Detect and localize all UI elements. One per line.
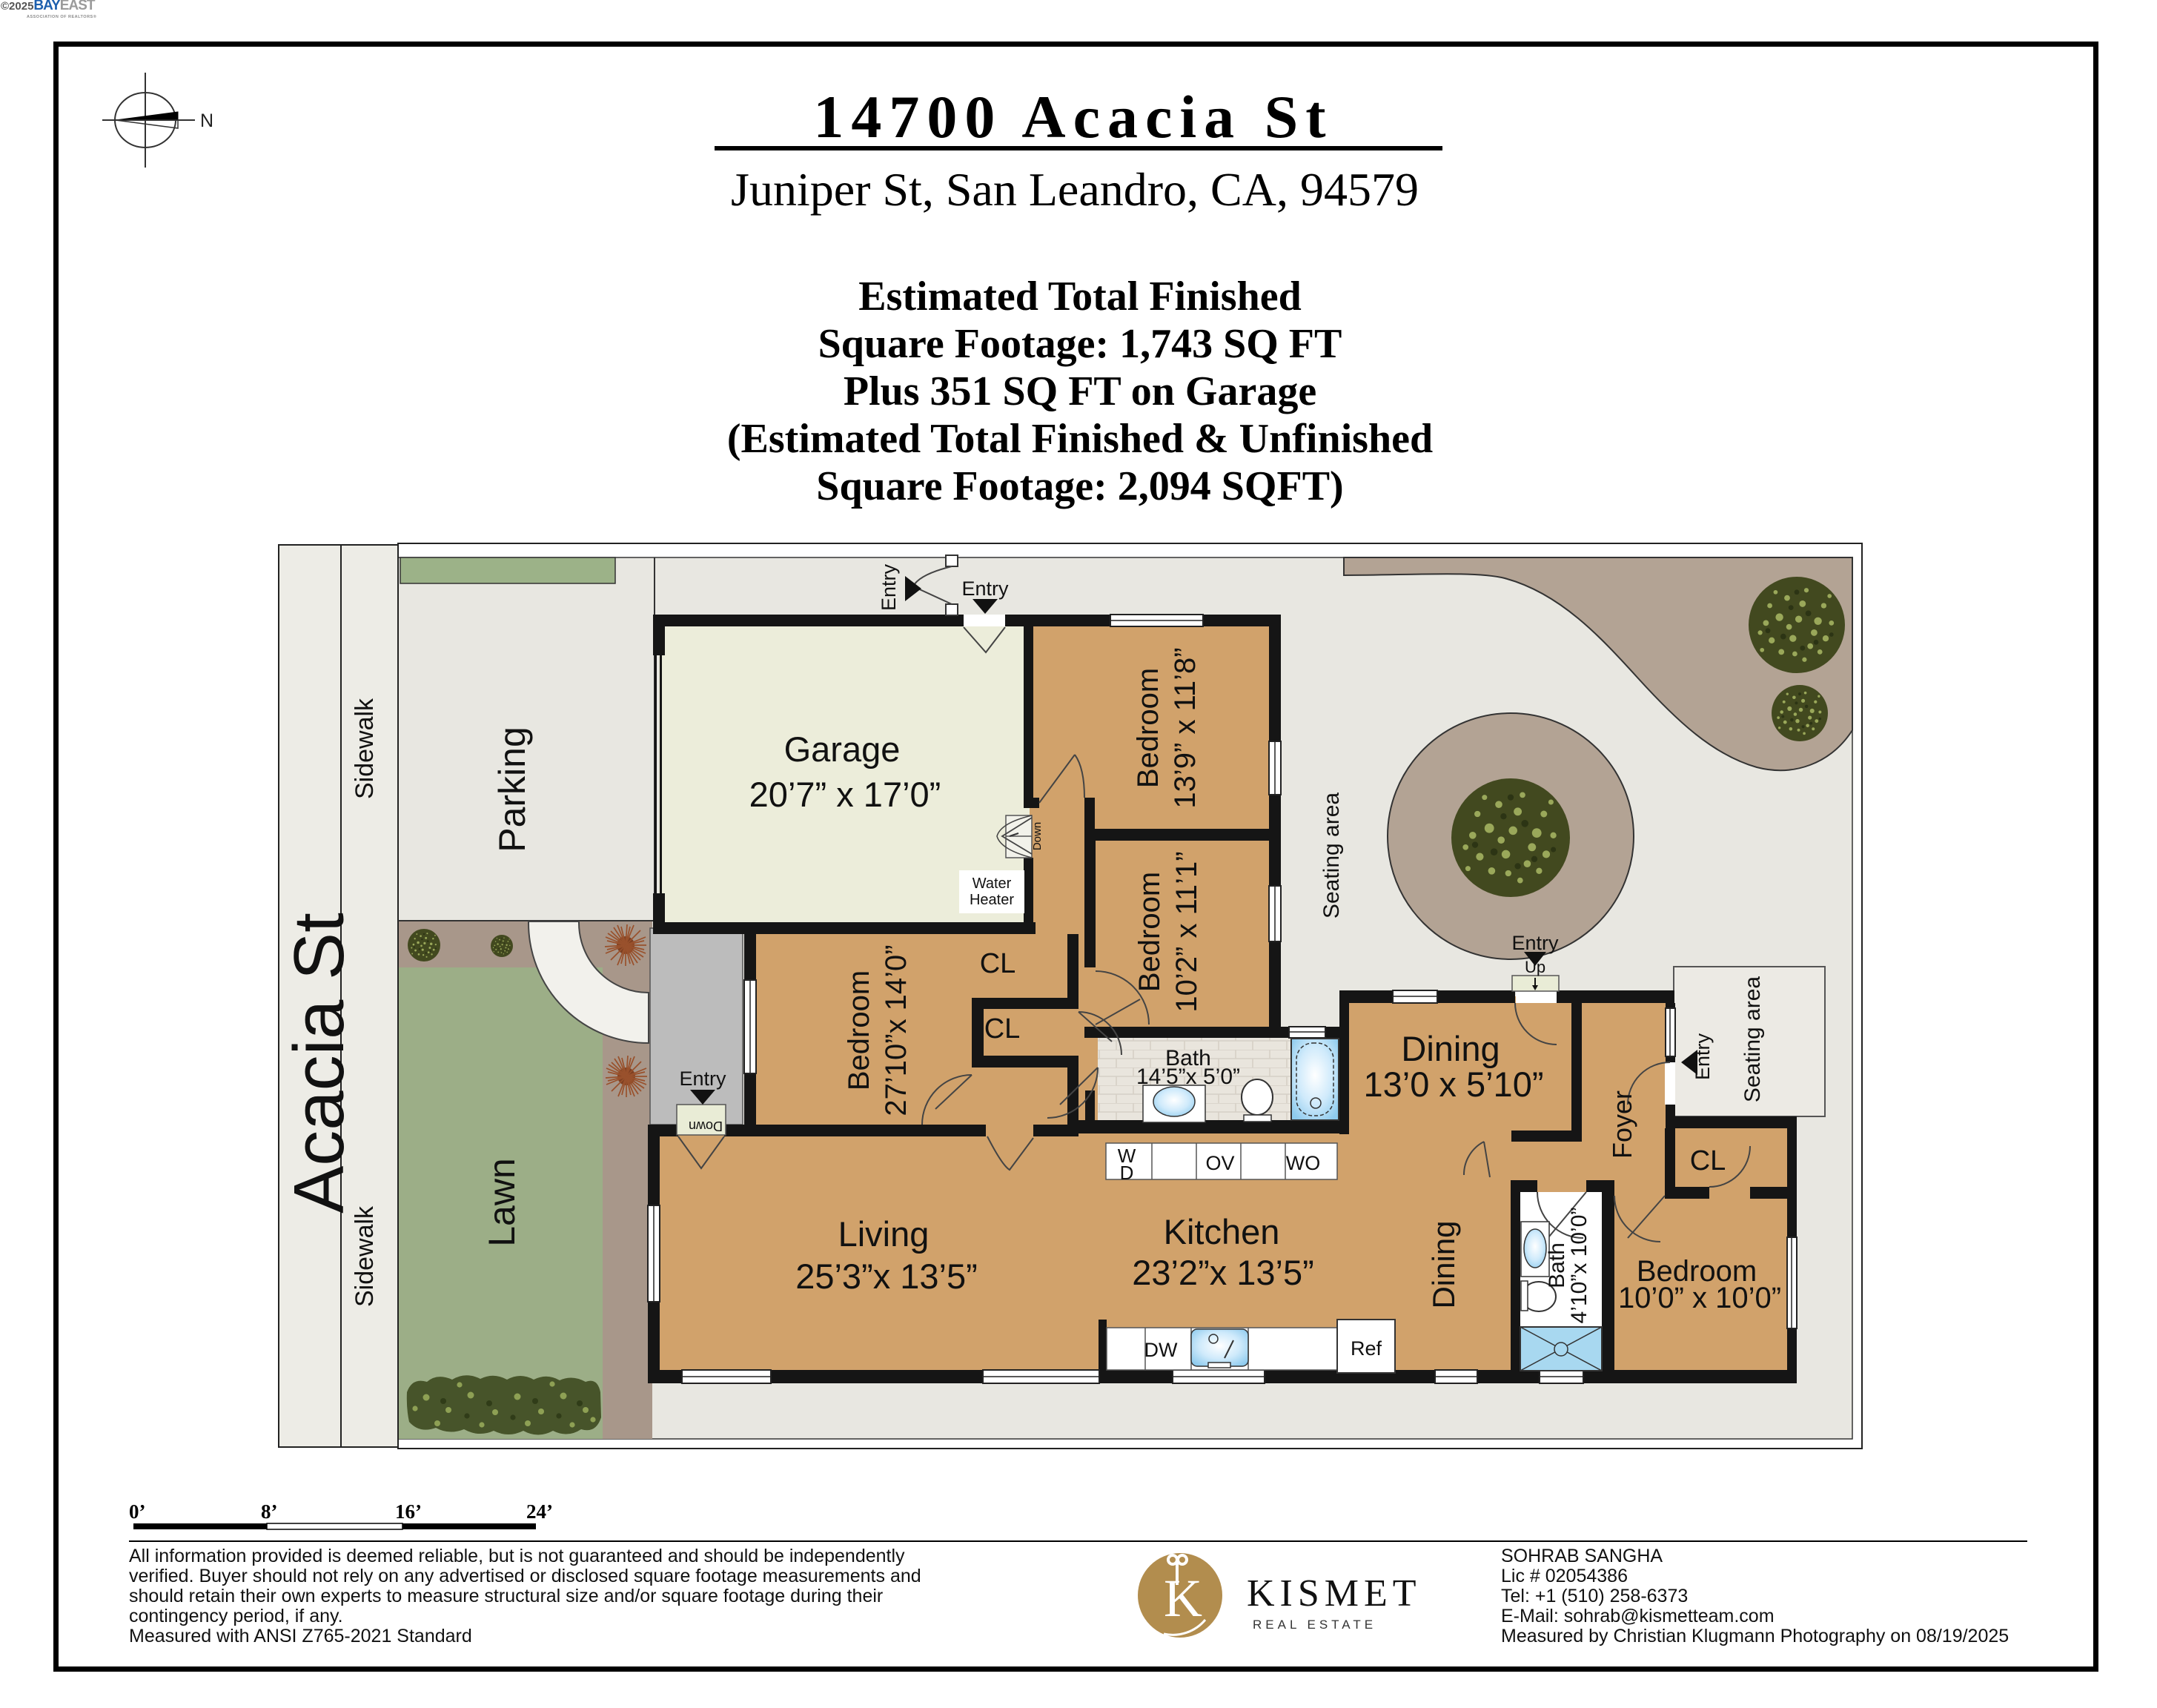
svg-text:WO: WO <box>1286 1152 1321 1174</box>
svg-text:25’3”x 13’5”: 25’3”x 13’5” <box>795 1257 978 1296</box>
svg-text:0’: 0’ <box>129 1505 146 1523</box>
svg-text:KISMET: KISMET <box>1247 1572 1422 1615</box>
svg-text:CL: CL <box>984 1013 1021 1045</box>
svg-text:24’: 24’ <box>526 1505 553 1523</box>
svg-text:Entry: Entry <box>878 563 900 611</box>
svg-text:13’9” x 11’8”: 13’9” x 11’8” <box>1169 647 1202 808</box>
svg-text:Kitchen: Kitchen <box>1164 1212 1280 1251</box>
svg-text:Dining: Dining <box>1401 1029 1500 1068</box>
svg-text:CL: CL <box>980 948 1016 979</box>
svg-text:10’0” x 10’0”: 10’0” x 10’0” <box>1618 1282 1781 1314</box>
svg-text:Up: Up <box>1525 958 1545 976</box>
svg-text:Foyer: Foyer <box>1607 1090 1637 1159</box>
svg-text:Bedroom: Bedroom <box>1133 872 1166 992</box>
svg-text:Entry: Entry <box>1511 932 1559 954</box>
svg-text:Entry: Entry <box>679 1067 726 1090</box>
svg-text:DW: DW <box>1144 1339 1178 1361</box>
svg-text:CL: CL <box>1690 1145 1726 1176</box>
svg-text:16’: 16’ <box>395 1505 422 1523</box>
svg-text:Down: Down <box>689 1119 723 1133</box>
svg-text:13’0 x 5’10”: 13’0 x 5’10” <box>1364 1065 1544 1104</box>
svg-text:Bedroom: Bedroom <box>843 970 875 1090</box>
svg-text:20’7” x 17’0”: 20’7” x 17’0” <box>749 775 941 814</box>
svg-text:Dining: Dining <box>1426 1220 1461 1308</box>
svg-text:10’2” x 11’1”: 10’2” x 11’1” <box>1170 851 1203 1012</box>
svg-text:OV: OV <box>1205 1152 1234 1174</box>
svg-text:Lawn: Lawn <box>481 1158 523 1247</box>
svg-text:Parking: Parking <box>491 726 533 853</box>
svg-text:Garage: Garage <box>784 729 901 769</box>
svg-text:14’5”x 5’0”: 14’5”x 5’0” <box>1136 1065 1240 1089</box>
svg-text:REAL ESTATE: REAL ESTATE <box>1253 1618 1376 1632</box>
svg-text:Down: Down <box>1031 822 1044 850</box>
svg-text:Water: Water <box>973 875 1012 892</box>
svg-text:Sidewalk: Sidewalk <box>351 1205 379 1307</box>
svg-text:Bath: Bath <box>1545 1242 1569 1288</box>
svg-text:Acacia St: Acacia St <box>279 913 359 1214</box>
svg-text:K: K <box>1164 1569 1202 1628</box>
svg-text:Entry: Entry <box>961 577 1009 600</box>
svg-text:Living: Living <box>838 1214 930 1254</box>
svg-text:Seating area: Seating area <box>1740 976 1765 1102</box>
svg-text:Ref: Ref <box>1351 1337 1382 1360</box>
svg-text:27’10”x 14’0”: 27’10”x 14’0” <box>880 944 912 1116</box>
svg-text:Heater: Heater <box>970 892 1014 908</box>
svg-text:4’10”x 10’0”: 4’10”x 10’0” <box>1567 1208 1591 1324</box>
svg-text:8’: 8’ <box>261 1505 278 1523</box>
svg-text:D: D <box>1120 1162 1134 1184</box>
svg-text:Seating area: Seating area <box>1319 792 1344 918</box>
svg-text:Bedroom: Bedroom <box>1132 668 1164 788</box>
svg-text:23’2”x 13’5”: 23’2”x 13’5” <box>1132 1253 1314 1292</box>
svg-text:Sidewalk: Sidewalk <box>351 698 379 799</box>
